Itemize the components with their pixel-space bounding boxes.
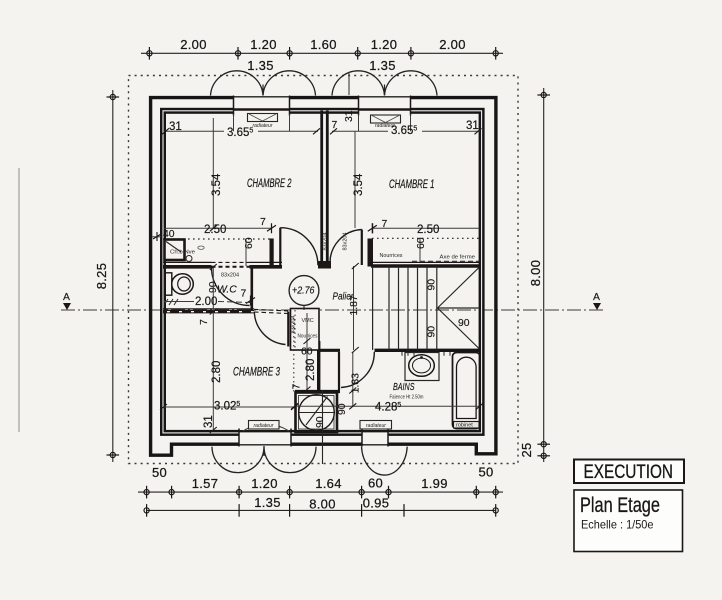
svg-text:8.25: 8.25 [94,263,109,290]
svg-text:1.35: 1.35 [369,58,396,73]
svg-text:A: A [63,292,70,303]
svg-text:robinet: robinet [456,423,473,429]
svg-text:2.50: 2.50 [417,224,439,236]
svg-text:83x204: 83x204 [343,232,349,250]
svg-text:radiateur: radiateur [254,423,275,429]
svg-text:60: 60 [416,237,427,249]
svg-text:90: 90 [427,279,438,291]
svg-text:8.00: 8.00 [309,497,336,512]
svg-text:Plan Etage: Plan Etage [580,493,660,517]
svg-text:0.95: 0.95 [363,496,390,511]
svg-text:40: 40 [163,229,175,240]
svg-text:+2.76: +2.76 [292,286,315,297]
svg-text:60: 60 [244,237,255,249]
svg-text:83x204: 83x204 [323,232,329,250]
svg-text:7: 7 [241,289,247,300]
svg-text:1.20: 1.20 [371,37,398,52]
svg-text:Ch.b Nve: Ch.b Nve [170,250,195,256]
svg-text:A: A [593,292,600,303]
svg-text:3.54: 3.54 [211,173,223,196]
svg-text:Echelle : 1/50e: Echelle : 1/50e [581,518,654,532]
svg-text:1.87: 1.87 [349,295,360,315]
svg-text:7: 7 [292,384,303,390]
svg-text:31: 31 [169,121,182,133]
svg-text:Faïence Ht 2.50m: Faïence Ht 2.50m [390,395,424,401]
svg-text:90: 90 [337,403,348,415]
svg-text:2.50: 2.50 [204,224,226,236]
svg-text:8.00: 8.00 [528,260,543,287]
svg-text:EXECUTION: EXECUTION [584,462,674,483]
svg-text:31: 31 [344,110,355,122]
svg-text:31: 31 [203,415,215,428]
svg-text:2.80: 2.80 [305,359,317,381]
svg-text:Nourrices: Nourrices [298,334,318,340]
svg-text:VMC: VMC [302,318,314,324]
svg-text:50: 50 [478,465,493,480]
svg-text:CHAMBRE 2: CHAMBRE 2 [247,178,292,190]
svg-text:90: 90 [427,326,438,338]
svg-text:7: 7 [382,219,388,230]
svg-text:83x204: 83x204 [221,273,239,279]
svg-text:Nourrices: Nourrices [380,253,403,259]
svg-text:radiateur: radiateur [366,423,387,429]
svg-text:1.64: 1.64 [315,476,342,491]
svg-text:BAINS: BAINS [393,382,415,393]
svg-text:90: 90 [315,416,326,428]
svg-text:CHAMBRE 1: CHAMBRE 1 [389,179,435,191]
svg-text:1.83: 1.83 [350,373,361,393]
svg-text:7: 7 [199,319,210,325]
svg-text:25: 25 [519,442,534,457]
svg-text:1.99: 1.99 [421,476,448,491]
svg-text:Axe de ferme: Axe de ferme [440,255,476,261]
svg-text:3.54: 3.54 [353,173,365,196]
svg-text:1.20: 1.20 [250,37,277,52]
svg-text:2.00: 2.00 [195,296,217,308]
svg-text:2.80: 2.80 [211,361,223,383]
svg-text:83x204: 83x204 [291,315,297,333]
svg-text:50: 50 [152,465,167,480]
svg-text:1.60: 1.60 [310,37,337,52]
svg-text:31: 31 [466,120,479,132]
svg-text:radiateur: radiateur [253,123,274,129]
svg-text:1.35: 1.35 [254,495,281,510]
svg-text:CHAMBRE 3: CHAMBRE 3 [233,367,280,379]
svg-text:1.57: 1.57 [192,476,219,491]
svg-text:W.C: W.C [217,285,237,296]
svg-text:1.35: 1.35 [247,58,274,73]
svg-text:7: 7 [260,217,266,228]
svg-text:2.00: 2.00 [439,37,466,52]
svg-text:2.00: 2.00 [180,37,207,52]
svg-text:90: 90 [458,318,470,329]
svg-text:60: 60 [368,476,383,491]
svg-text:60: 60 [301,347,313,358]
svg-text:1.20: 1.20 [251,476,278,491]
